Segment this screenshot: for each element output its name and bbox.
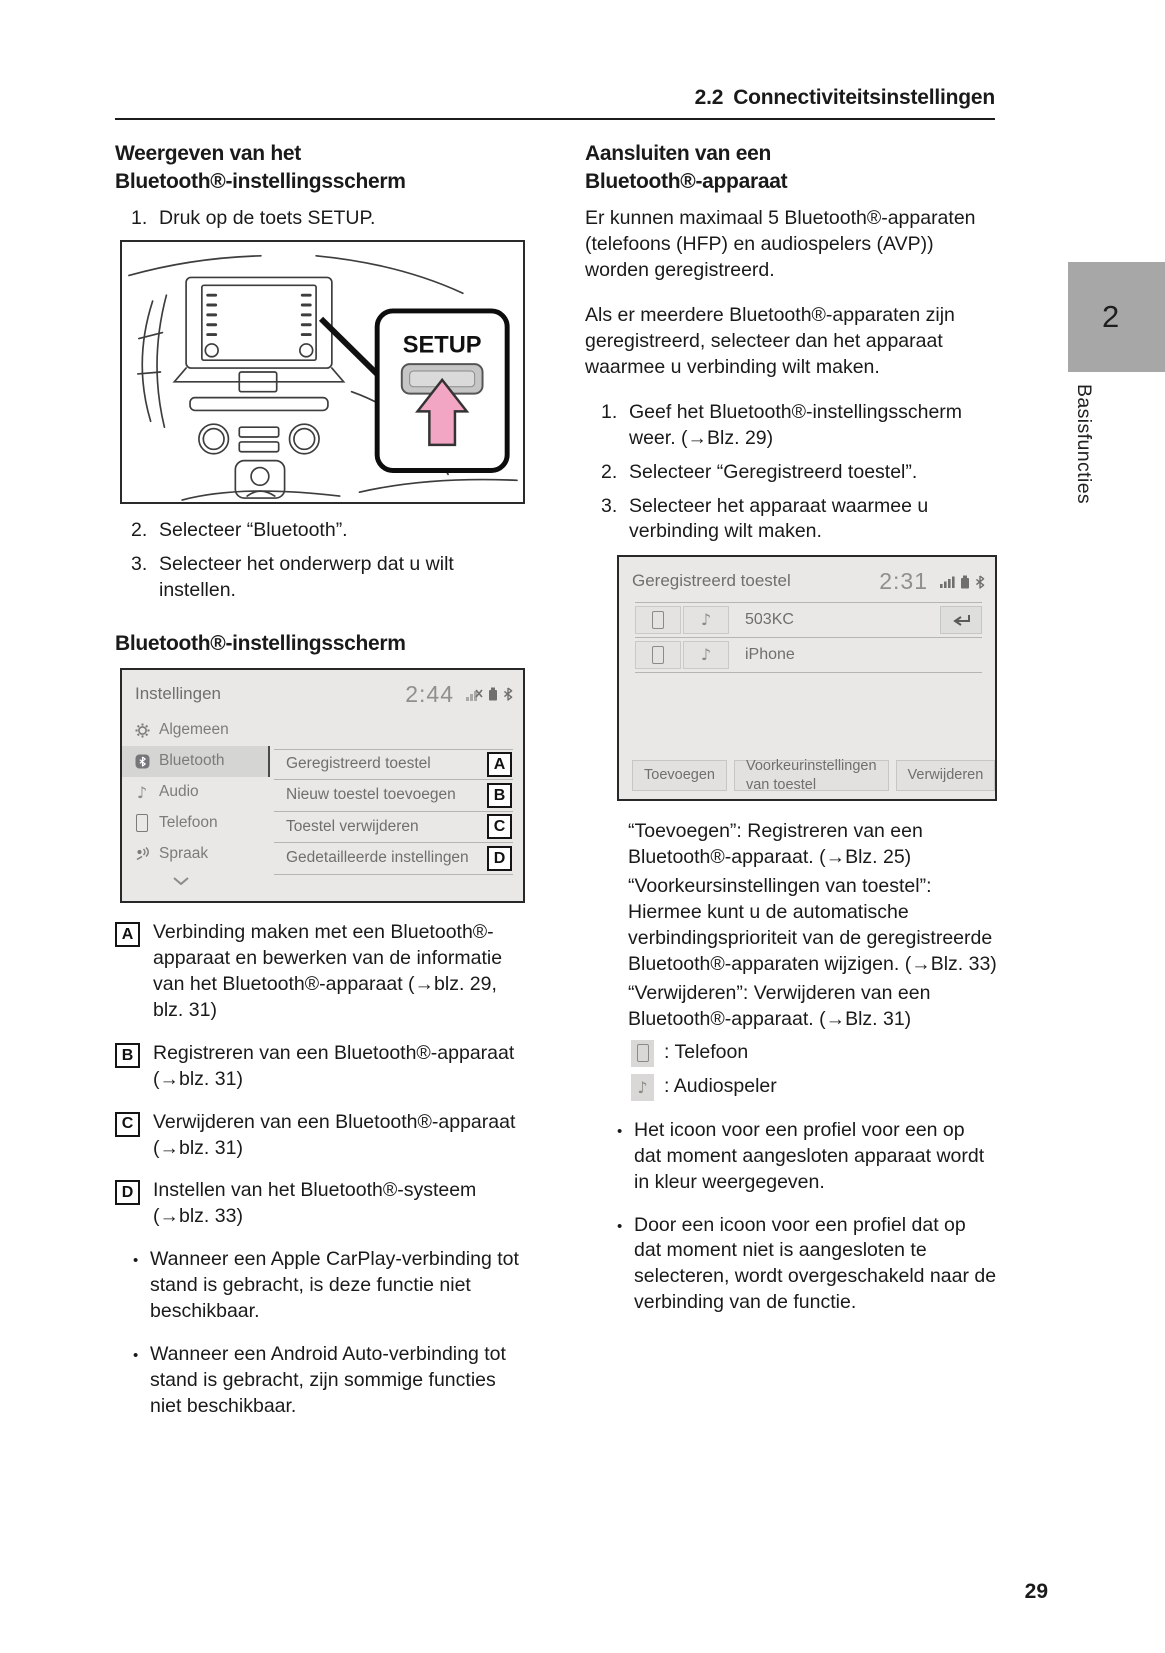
legend-tag-d: D — [115, 1180, 140, 1205]
step-1: 1. Druk op de toets SETUP. — [131, 206, 525, 232]
button-explanations: “Toevoegen”: Registreren van een Bluetoo… — [628, 819, 997, 1032]
legend-tag-a: A — [115, 922, 140, 947]
section-number: 2.2 — [695, 86, 724, 109]
audio-profile-icon[interactable]: ♪ — [683, 641, 729, 669]
step-3: 3. Selecteer het onderwerp dat u wilt in… — [131, 552, 525, 604]
legend-item-c: C Verwijderen van een Bluetooth®-apparaa… — [115, 1110, 525, 1162]
note-profile-color: • Het icoon voor een profiel voor een op… — [617, 1118, 997, 1196]
battery-icon — [960, 575, 970, 589]
settings-titlebar: Instellingen 2:44 — [122, 670, 523, 713]
legend-item-b: B Registreren van een Bluetooth®-apparaa… — [115, 1041, 525, 1093]
settings-body: Algemeen Bluetooth ♪ Audio Telef — [122, 713, 523, 892]
back-button[interactable] — [940, 606, 982, 634]
verwijderen-button[interactable]: Verwijderen — [896, 760, 996, 791]
legend-tag-c: C — [115, 1112, 140, 1137]
note-carplay: • Wanneer een Apple CarPlay-verbinding t… — [133, 1247, 525, 1325]
icon-legend-telefoon: : Telefoon — [631, 1040, 997, 1067]
devices-titlebar: Geregistreerd toestel 2:31 — [619, 557, 995, 600]
step-2: 2. Selecteer “Bluetooth”. — [131, 518, 525, 544]
voice-icon — [134, 847, 150, 861]
right-step-3: 3. Selecteer het apparaat waarmee u verb… — [601, 494, 997, 546]
voorkeurinstellingen-button[interactable]: Voorkeurinstellingen van toestel — [734, 760, 889, 791]
callout-tag-d: D — [487, 846, 512, 871]
clock: 2:44 — [405, 679, 454, 710]
settings-row-verwijderen[interactable]: Toestel verwijderen C — [274, 812, 513, 844]
chapter-tab: 2 — [1068, 262, 1165, 372]
scroll-down-chevron[interactable] — [122, 870, 270, 892]
note-androidauto: • Wanneer een Android Auto-verbinding to… — [133, 1342, 525, 1420]
legend-tag-b: B — [115, 1043, 140, 1068]
icon-legend-audiospeler: ♪ : Audiospeler — [631, 1074, 997, 1101]
chapter-label: Basisfuncties — [1072, 384, 1095, 504]
column-right: Aansluiten van een Bluetooth®-apparaat E… — [585, 140, 997, 1316]
devices-title: Geregistreerd toestel — [632, 570, 879, 593]
setup-label: SETUP — [403, 332, 482, 358]
phone-profile-icon[interactable] — [635, 641, 681, 669]
battery-icon — [488, 687, 498, 701]
gear-icon — [134, 723, 150, 738]
header-rule — [115, 118, 995, 120]
legend-item-a: A Verbinding maken met een Bluetooth®-ap… — [115, 920, 525, 1024]
callout-tag-c: C — [487, 814, 512, 839]
music-note-icon: ♪ — [631, 1074, 654, 1101]
phone-icon — [134, 814, 150, 832]
settings-title: Instellingen — [135, 683, 405, 706]
page-title: 2.2Connectiviteitsinstellingen — [115, 86, 995, 110]
device-actions: Toevoegen Voorkeurinstellingen van toest… — [632, 760, 982, 791]
phone-icon — [631, 1040, 654, 1067]
clock: 2:31 — [879, 566, 928, 597]
signal-muted-icon — [466, 688, 483, 701]
bluetooth-icon — [503, 687, 513, 701]
device-row-iphone[interactable]: ♪ iPhone — [635, 638, 982, 673]
heading-weergeven: Weergeven van het Bluetooth®-instellings… — [115, 140, 525, 196]
column-left: Weergeven van het Bluetooth®-instellings… — [115, 140, 525, 1420]
section-title: Connectiviteitsinstellingen — [733, 86, 995, 109]
registered-devices-screenshot: Geregistreerd toestel 2:31 — [617, 555, 997, 801]
legend-item-d: D Instellen van het Bluetooth®-systeem (… — [115, 1178, 525, 1230]
menu-item-algemeen[interactable]: Algemeen — [122, 715, 270, 746]
right-step-1: 1. Geef het Bluetooth®-instellingsscherm… — [601, 400, 997, 452]
audio-profile-icon[interactable]: ♪ — [683, 606, 729, 634]
explanation-voorkeursinstellingen: “Voorkeursinstellingen van toestel”: Hie… — [628, 874, 997, 978]
settings-row-geregistreerd[interactable]: Geregistreerd toestel A — [274, 749, 513, 781]
callout-tag-a: A — [487, 752, 512, 777]
phone-profile-icon[interactable] — [635, 606, 681, 634]
bluetooth-icon — [975, 575, 985, 589]
paragraph-max-devices: Er kunnen maximaal 5 Bluetooth®-apparate… — [585, 206, 997, 284]
music-note-icon: ♪ — [134, 782, 150, 803]
heading-aansluiten: Aansluiten van een Bluetooth®-apparaat — [585, 140, 997, 196]
statusbar-icons — [940, 575, 985, 589]
device-list: ♪ 503KC ♪ iPhone — [635, 602, 982, 673]
settings-row-gedetailleerd[interactable]: Gedetailleerde instellingen D — [274, 843, 513, 875]
settings-row-nieuw[interactable]: Nieuw toestel toevoegen B — [274, 780, 513, 812]
paragraph-multiple-devices: Als er meerdere Bluetooth®-apparaten zij… — [585, 303, 997, 381]
heading-instellingsscherm: Bluetooth®-instellingsscherm — [115, 630, 525, 658]
settings-menu: Algemeen Bluetooth ♪ Audio Telef — [122, 713, 270, 892]
note-profile-switch: • Door een icoon voor een profiel dat op… — [617, 1213, 997, 1317]
statusbar-icons — [466, 687, 513, 701]
toevoegen-button[interactable]: Toevoegen — [632, 760, 727, 791]
dashboard-illustration: SETUP — [122, 242, 523, 502]
callout-tag-b: B — [487, 783, 512, 808]
settings-list: Geregistreerd toestel A Nieuw toestel to… — [274, 749, 513, 892]
menu-item-telefoon[interactable]: Telefoon — [122, 808, 270, 839]
bluetooth-badge-icon — [134, 754, 150, 769]
menu-item-audio[interactable]: ♪ Audio — [122, 777, 270, 808]
page-number: 29 — [1025, 1580, 1048, 1604]
dashboard-figure: SETUP — [120, 240, 525, 504]
right-step-2: 2. Selecteer “Geregistreerd toestel”. — [601, 460, 997, 486]
device-row-503kc[interactable]: ♪ 503KC — [635, 603, 982, 638]
manual-page: 2.2Connectiviteitsinstellingen 2 Basisfu… — [0, 0, 1165, 1653]
menu-item-spraak[interactable]: Spraak — [122, 839, 270, 870]
chapter-number: 2 — [1102, 299, 1119, 335]
menu-item-bluetooth[interactable]: Bluetooth — [122, 746, 270, 777]
explanation-verwijderen: “Verwijderen”: Verwijderen van een Bluet… — [628, 981, 997, 1033]
signal-bars-icon — [940, 575, 955, 588]
settings-screenshot: Instellingen 2:44 — [120, 668, 525, 903]
explanation-toevoegen: “Toevoegen”: Registreren van een Bluetoo… — [628, 819, 997, 871]
